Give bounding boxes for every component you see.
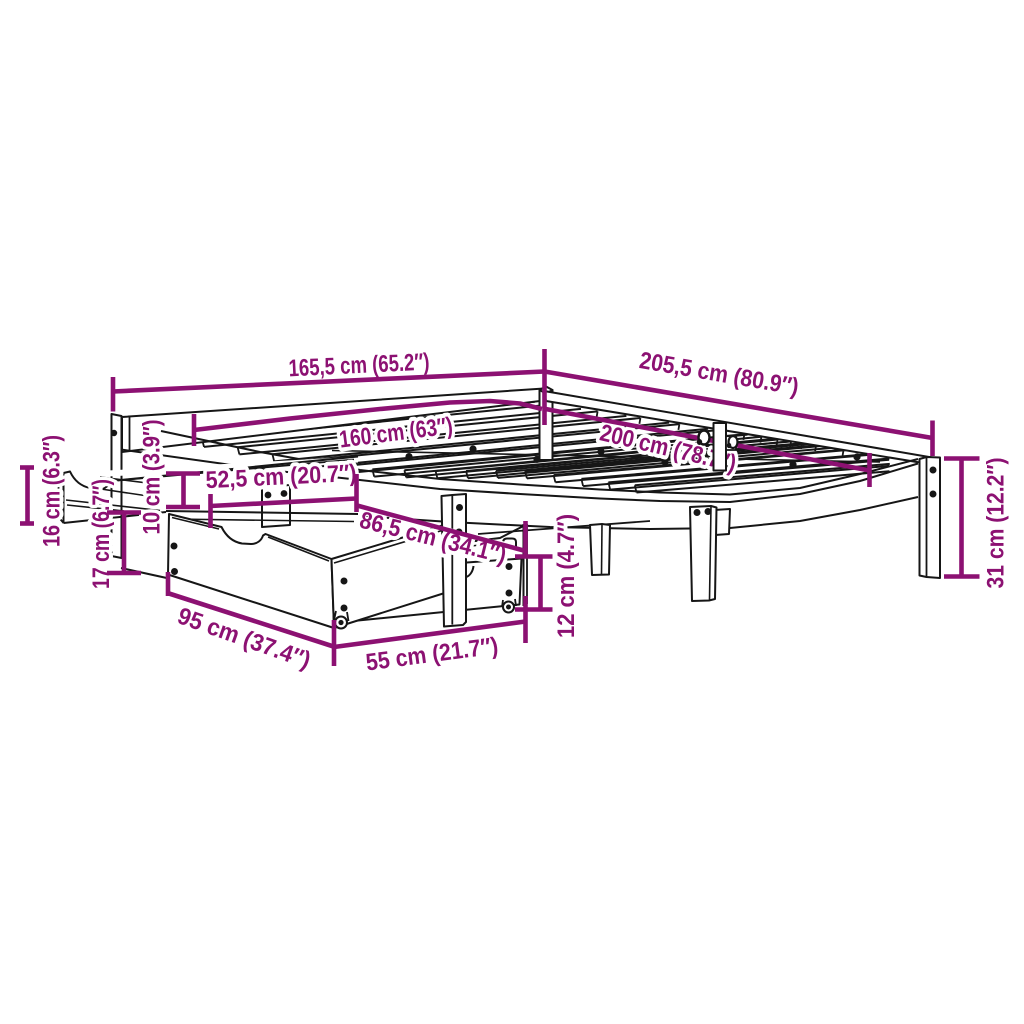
svg-text:12 cm (4.7″): 12 cm (4.7″) [553, 514, 580, 638]
svg-text:31 cm (12.2″): 31 cm (12.2″) [983, 458, 1010, 589]
svg-text:10 cm (3.9″): 10 cm (3.9″) [139, 420, 166, 535]
svg-text:16 cm (6.3″): 16 cm (6.3″) [39, 435, 66, 547]
